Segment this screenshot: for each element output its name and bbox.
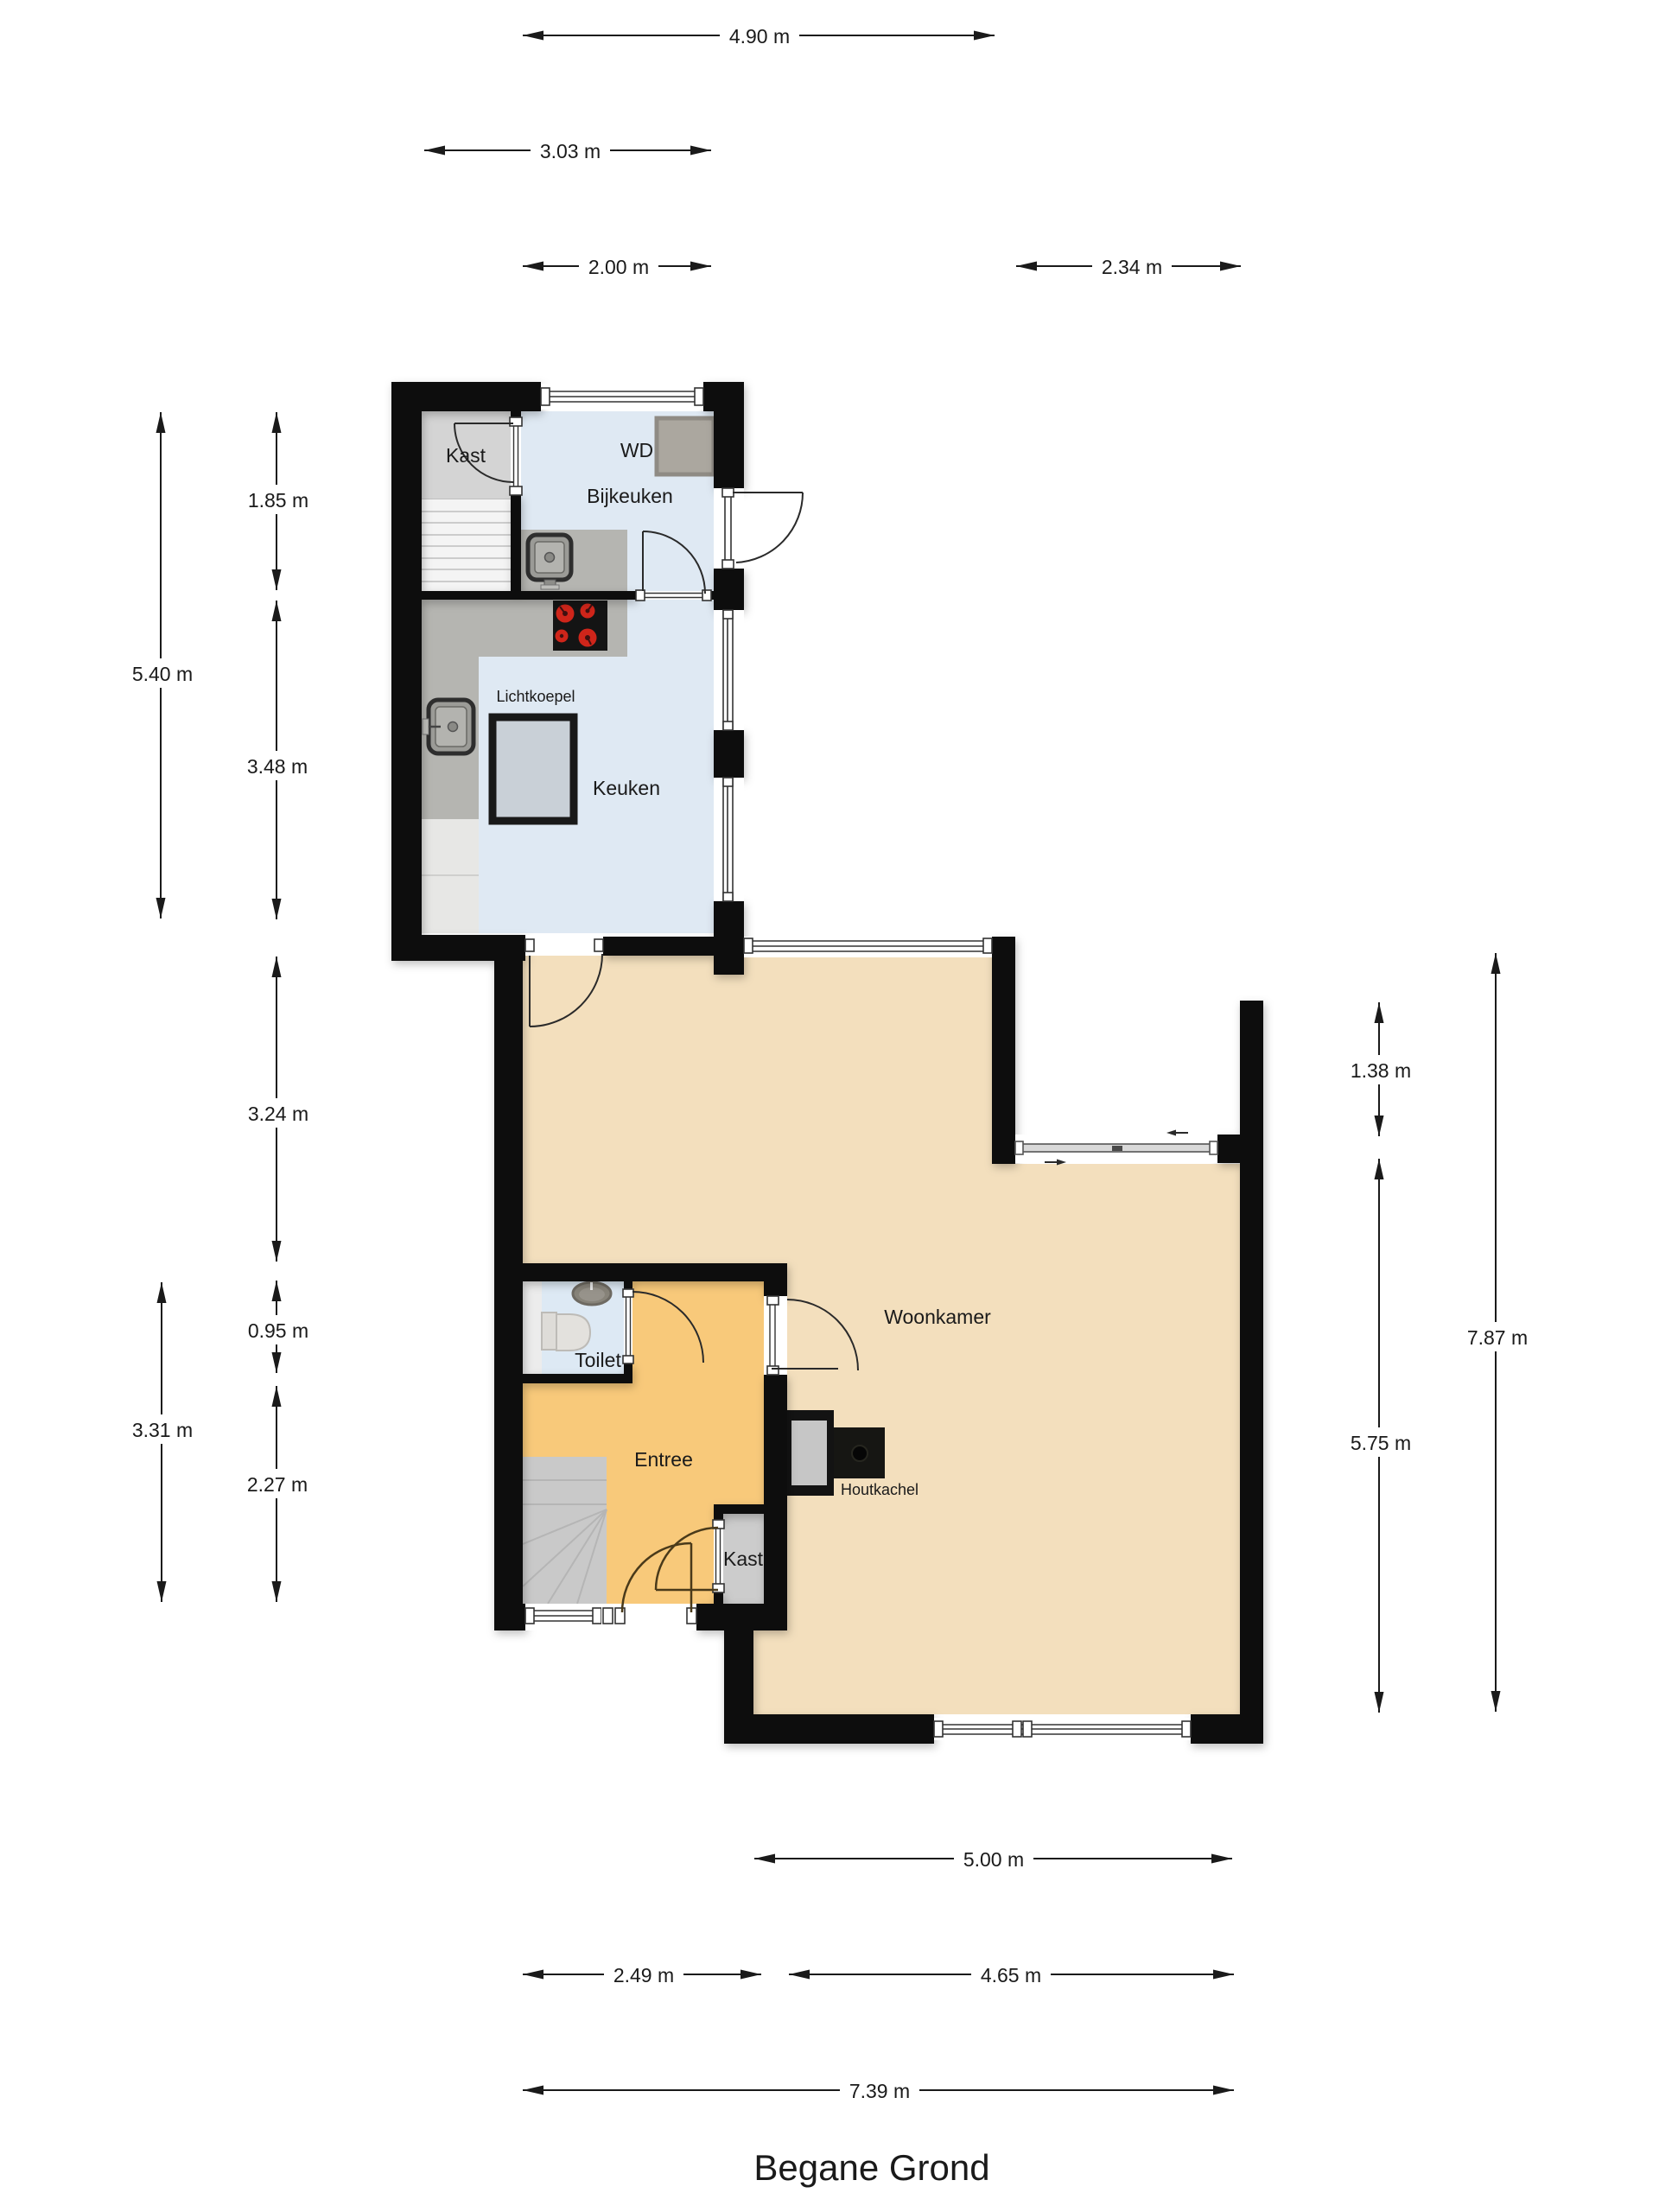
svg-text:1.85 m: 1.85 m — [248, 489, 308, 512]
svg-text:4.65 m: 4.65 m — [981, 1964, 1041, 1986]
svg-text:7.87 m: 7.87 m — [1467, 1326, 1528, 1349]
svg-text:Lichtkoepel: Lichtkoepel — [496, 688, 575, 705]
svg-text:1.38 m: 1.38 m — [1351, 1059, 1411, 1082]
svg-text:5.75 m: 5.75 m — [1351, 1432, 1411, 1454]
svg-text:3.48 m: 3.48 m — [247, 755, 308, 778]
svg-text:3.31 m: 3.31 m — [132, 1419, 193, 1441]
svg-text:0.95 m: 0.95 m — [248, 1319, 308, 1342]
svg-text:2.34 m: 2.34 m — [1102, 256, 1162, 278]
svg-text:2.27 m: 2.27 m — [247, 1473, 308, 1496]
svg-text:2.00 m: 2.00 m — [588, 256, 649, 278]
svg-text:WD: WD — [620, 439, 653, 461]
svg-text:Woonkamer: Woonkamer — [884, 1306, 991, 1328]
svg-text:Toilet: Toilet — [575, 1349, 621, 1371]
svg-text:4.90 m: 4.90 m — [729, 25, 790, 48]
svg-text:7.39 m: 7.39 m — [849, 2080, 910, 2102]
svg-text:5.00 m: 5.00 m — [963, 1848, 1024, 1871]
svg-text:Kast: Kast — [446, 444, 486, 467]
svg-text:Keuken: Keuken — [593, 777, 660, 799]
svg-text:3.03 m: 3.03 m — [540, 140, 601, 162]
svg-text:3.24 m: 3.24 m — [248, 1103, 308, 1125]
svg-text:5.40 m: 5.40 m — [132, 663, 193, 685]
svg-text:Entree: Entree — [634, 1448, 693, 1471]
svg-text:2.49 m: 2.49 m — [613, 1964, 674, 1986]
svg-text:Bijkeuken: Bijkeuken — [587, 485, 673, 507]
svg-text:Houtkachel: Houtkachel — [841, 1481, 918, 1498]
svg-text:Begane Grond: Begane Grond — [753, 2147, 989, 2188]
svg-text:Kast: Kast — [723, 1548, 764, 1570]
